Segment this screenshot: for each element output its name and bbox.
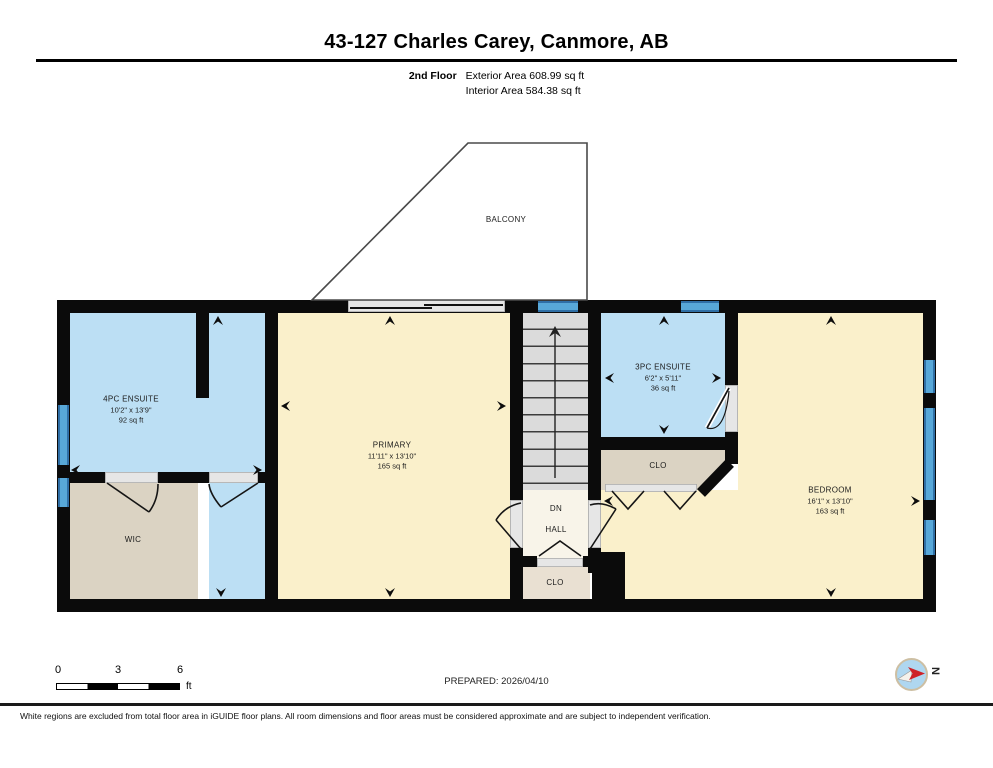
opening-hall-closet — [537, 558, 583, 567]
floorplan-page: { "header": { "title": "43-127 Charles C… — [0, 0, 993, 768]
scale-tick-6: 6 — [177, 664, 183, 676]
window-bedroom-3 — [924, 520, 935, 555]
exterior-area: Exterior Area 608.99 sq ft — [466, 69, 584, 84]
wall-primary-left — [265, 313, 278, 599]
wall-bottom — [57, 599, 936, 612]
wall-hallcloset-jamb-left — [520, 556, 537, 567]
scale-tick-0: 0 — [55, 664, 61, 676]
window-stairwell — [538, 301, 578, 312]
window-bedroom-2 — [924, 408, 935, 500]
label-wic: WIC — [125, 535, 141, 546]
wall-stair-right-upper — [588, 313, 601, 500]
room-4pc-ensuite — [70, 313, 265, 472]
opening-ensuite3-door — [725, 385, 738, 432]
label-4pc-ensuite: 4PC ENSUITE 10'2" x 13'9" 92 sq ft — [103, 394, 159, 426]
compass-north-label: N — [929, 667, 941, 675]
label-hall: HALL — [545, 525, 566, 536]
label-hall-closet: CLO — [546, 578, 563, 589]
compass-needle — [897, 660, 926, 689]
opening-wic-door — [105, 472, 158, 483]
opening-hall-bedroom — [588, 500, 601, 548]
wall-stair-left-upper — [510, 313, 523, 500]
window-ensuite3 — [681, 301, 719, 312]
wall-ensuite-stub — [196, 313, 209, 398]
wall-bedroom-step — [592, 552, 625, 599]
room-bedroom — [738, 313, 923, 599]
label-3pc-ensuite: 3PC ENSUITE 6'2" x 5'11" 36 sq ft — [635, 362, 691, 394]
compass-icon — [895, 658, 928, 691]
footer-disclaimer: White regions are excluded from total fl… — [20, 711, 980, 721]
floor-label: 2nd Floor — [409, 69, 457, 99]
sliding-door-balcony — [348, 300, 505, 312]
wall-ensuite-wic-b — [158, 472, 209, 483]
scale-tick-3: 3 — [115, 664, 121, 676]
opening-corridor-door — [209, 472, 258, 483]
footer-divider — [0, 703, 993, 706]
window-bedroom-1 — [924, 360, 935, 393]
balcony-outline — [312, 143, 587, 300]
label-balcony: BALCONY — [486, 215, 526, 226]
opening-hall-primary — [510, 500, 523, 548]
wall-ensuite-wic-c — [258, 472, 272, 483]
window-ensuite4 — [58, 405, 69, 465]
prepared-date: PREPARED: 2026/04/10 — [0, 676, 993, 687]
area-summary: Exterior Area 608.99 sq ft Interior Area… — [466, 69, 584, 99]
wall-ensuite3-right-upper — [725, 313, 738, 385]
interior-area: Interior Area 584.38 sq ft — [466, 84, 584, 99]
wall-ensuite3-bottom — [588, 437, 725, 450]
staircase — [523, 313, 588, 492]
label-primary: PRIMARY 11'11" x 13'10" 165 sq ft — [368, 440, 416, 472]
wall-ensuite3-right-lower — [725, 432, 738, 464]
wall-hallcloset-jamb-right — [583, 556, 592, 567]
label-bedroom: BEDROOM 16'1" x 13'10" 163 sq ft — [807, 485, 852, 517]
label-closet-mid: CLO — [649, 461, 666, 472]
label-stair-dn: DN — [550, 504, 562, 515]
window-wic — [58, 478, 69, 507]
opening-closet-mid — [605, 484, 697, 492]
floor-info: 2nd Floor Exterior Area 608.99 sq ft Int… — [0, 69, 993, 99]
room-4pc-ensuite-corridor — [209, 472, 265, 599]
title-divider — [36, 59, 957, 62]
page-title: 43-127 Charles Carey, Canmore, AB — [0, 31, 993, 54]
